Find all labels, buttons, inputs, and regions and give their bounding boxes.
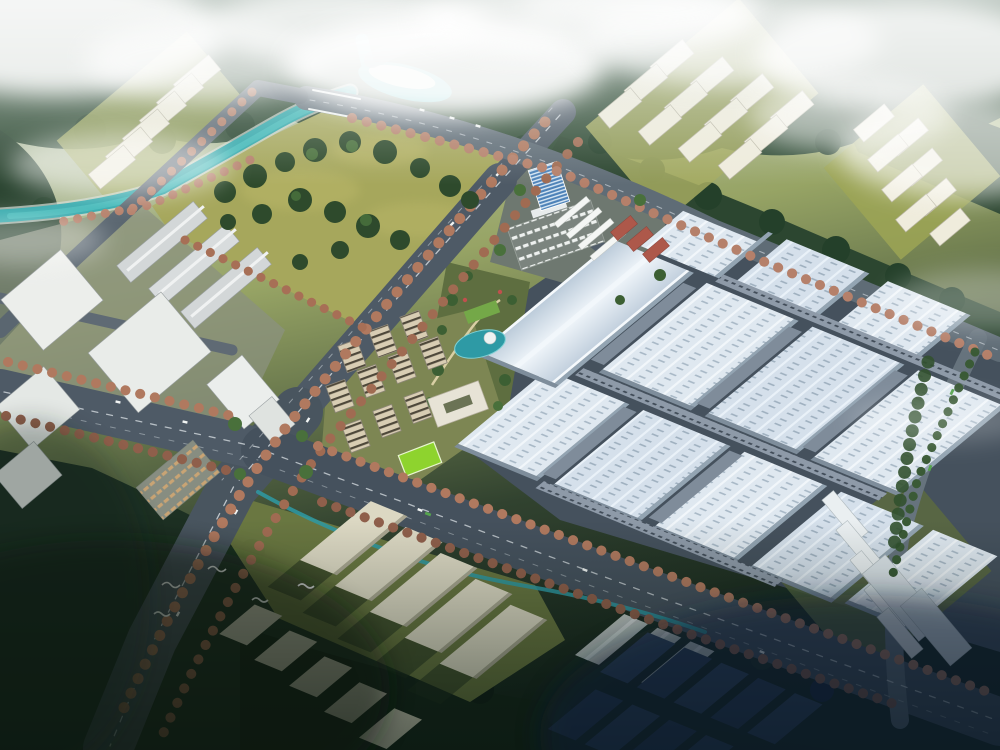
aerial-render xyxy=(0,0,1000,750)
scene-canvas xyxy=(0,0,1000,750)
spherical-tank xyxy=(484,332,496,344)
